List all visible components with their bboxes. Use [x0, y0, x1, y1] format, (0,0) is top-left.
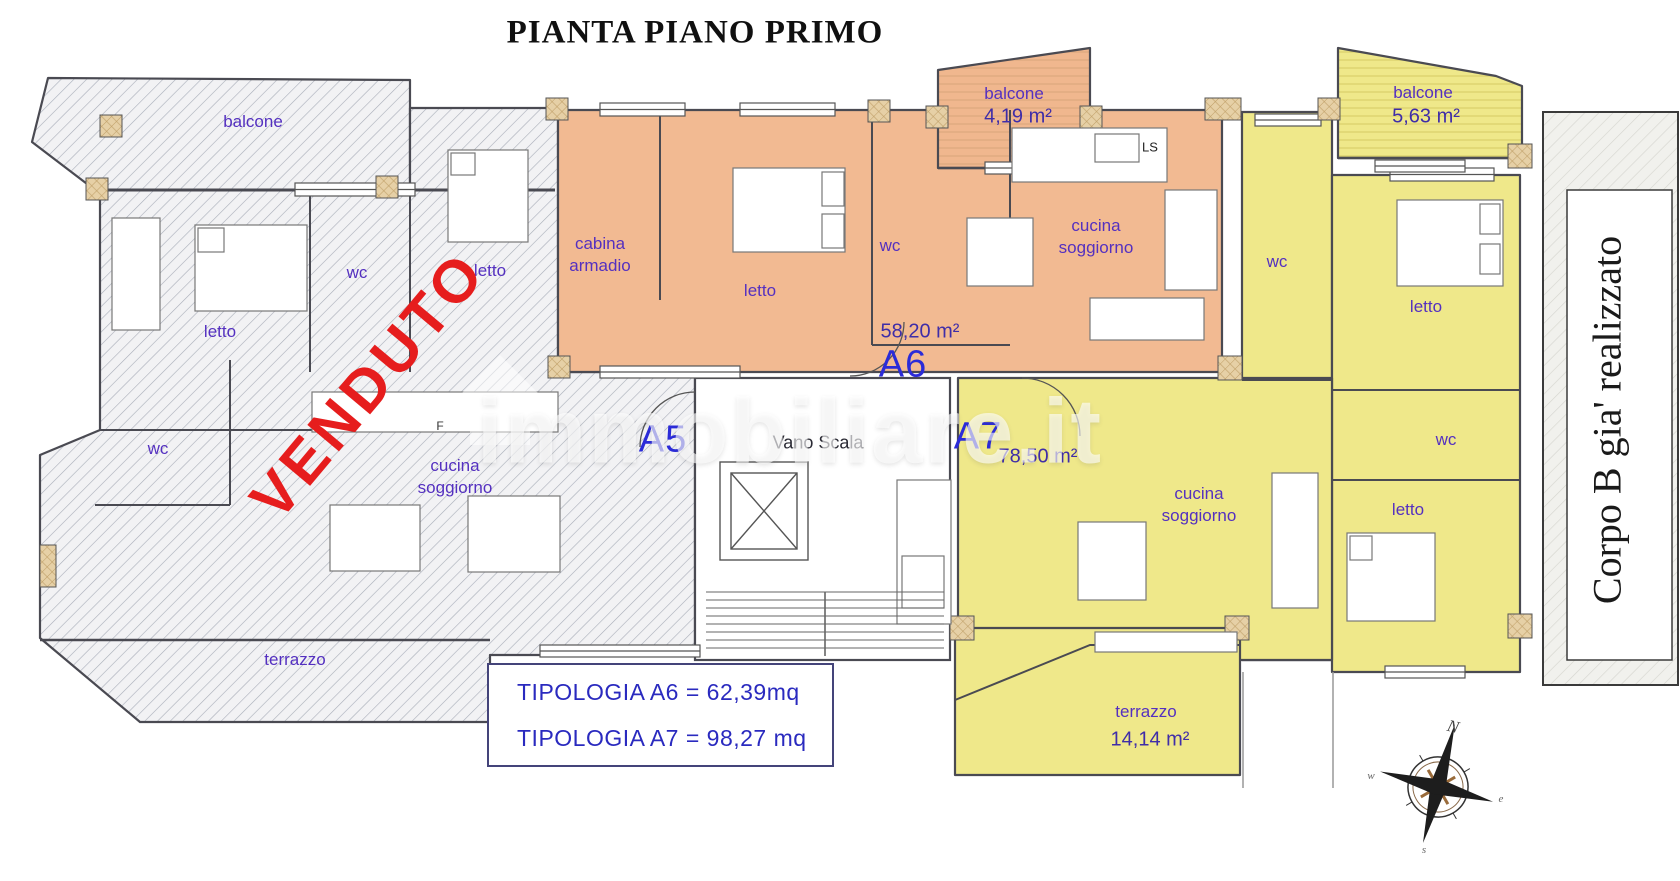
a6-wc-label: wc [880, 236, 901, 256]
a6-letto-label: letto [744, 281, 776, 301]
a5-letto1-label: letto [204, 322, 236, 342]
a6-cucina-label: cucina soggiorno [1044, 215, 1148, 259]
a7-terrazzo-label: terrazzo [1115, 702, 1176, 722]
floorplan-page: PIANTA PIANO PRIMO immobiliare.it VENDUT… [0, 0, 1680, 881]
a7-letto2-label: letto [1392, 500, 1424, 520]
a7-wc1-label: wc [1267, 252, 1288, 272]
a5-terrazzo-label: terrazzo [264, 650, 325, 670]
a7-letto1-label: letto [1410, 297, 1442, 317]
compass-south-label: s [1422, 844, 1426, 856]
a7-balcone-area: 5,63 m² [1392, 106, 1460, 129]
page-title: PIANTA PIANO PRIMO [507, 15, 884, 52]
typology-legend: TIPOLOGIA A6 = 62,39mq TIPOLOGIA A7 = 98… [487, 663, 834, 767]
watermark-text: immobiliare.it [477, 380, 1103, 485]
a6-balcone-area: 4,19 m² [984, 106, 1052, 129]
legend-tipologia-a7: TIPOLOGIA A7 = 98,27 mq [517, 725, 807, 752]
corpo-b-label: Corpo B gia' realizzato [1584, 236, 1631, 604]
a6-balcone-label: balcone [984, 84, 1044, 104]
a7-cucina-label: cucina soggiorno [1147, 483, 1251, 527]
a5-wc2-label: wc [148, 439, 169, 459]
a7-terrazzo-area: 14,14 m² [1111, 729, 1190, 752]
a7-wc2-label: wc [1436, 430, 1457, 450]
a5-wc1-label: wc [347, 263, 368, 283]
legend-tipologia-a6: TIPOLOGIA A6 = 62,39mq [517, 679, 800, 706]
compass-east-label: e [1499, 793, 1504, 805]
compass-rose [1365, 709, 1510, 858]
compass-west-label: w [1367, 770, 1374, 782]
a5-fridge-label: F [436, 419, 443, 433]
a7-balcone-label: balcone [1393, 83, 1453, 103]
a6-ls-label: LS [1142, 140, 1158, 155]
a6-area-value: 58,20 m² [881, 321, 960, 344]
a6-cabina-armadio-label: cabina armadio [548, 233, 652, 277]
a5-balcone-label: balcone [223, 112, 283, 132]
